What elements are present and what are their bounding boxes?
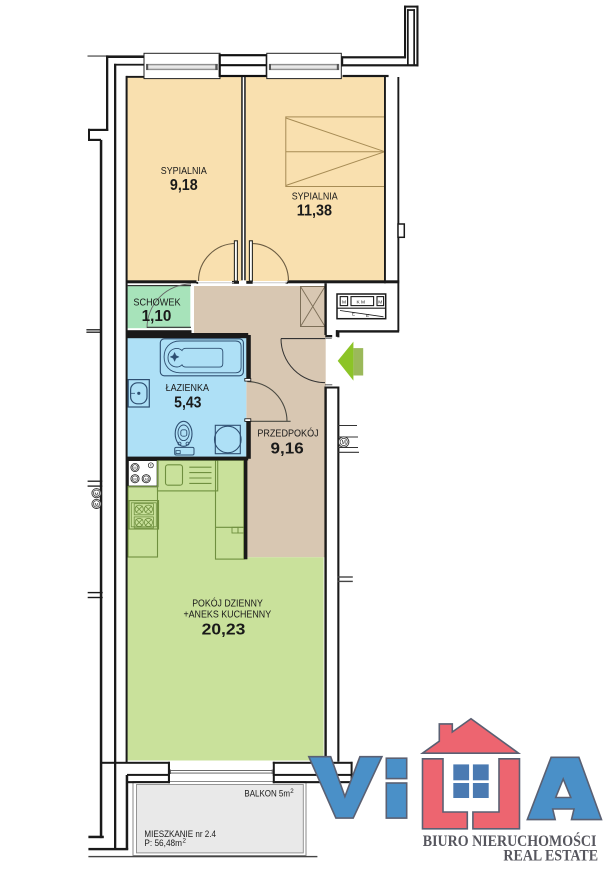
svg-text:9,16: 9,16 (271, 440, 304, 457)
svg-text:M: M (133, 466, 136, 470)
svg-text:PRZEDPOKÓJ: PRZEDPOKÓJ (257, 429, 318, 440)
svg-text:E: E (352, 312, 355, 317)
svg-text:M: M (95, 502, 99, 508)
svg-text:M: M (342, 299, 346, 305)
svg-text:1,10: 1,10 (142, 308, 172, 325)
svg-text:+ANEKS KUCHENNY: +ANEKS KUCHENNY (183, 610, 271, 621)
svg-text:P: 56,48m: P: 56,48m (144, 838, 182, 848)
svg-text:11,38: 11,38 (297, 203, 332, 220)
svg-text:2: 2 (290, 788, 294, 795)
svg-text:ŁAZIENKA: ŁAZIENKA (166, 383, 210, 394)
svg-text:SYPIALNIA: SYPIALNIA (161, 166, 207, 177)
svg-text:M: M (95, 491, 99, 497)
svg-text:9,18: 9,18 (170, 177, 198, 194)
svg-text:20,23: 20,23 (202, 621, 246, 638)
svg-text:M: M (145, 477, 148, 481)
svg-text:E: E (366, 313, 369, 318)
svg-text:M: M (342, 440, 346, 446)
svg-text:REAL ESTATE: REAL ESTATE (503, 848, 598, 865)
svg-text:M: M (378, 299, 382, 305)
svg-text:5,43: 5,43 (174, 394, 201, 411)
svg-text:K M: K M (357, 299, 366, 305)
svg-text:BALKON 5m: BALKON 5m (244, 788, 290, 798)
svg-text:2: 2 (183, 837, 187, 844)
svg-text:SYPIALNIA: SYPIALNIA (292, 192, 338, 203)
svg-text:M: M (133, 477, 136, 481)
svg-text:SCHOWEK: SCHOWEK (133, 297, 181, 308)
svg-text:POKÓJ DZIENNY: POKÓJ DZIENNY (192, 599, 263, 610)
